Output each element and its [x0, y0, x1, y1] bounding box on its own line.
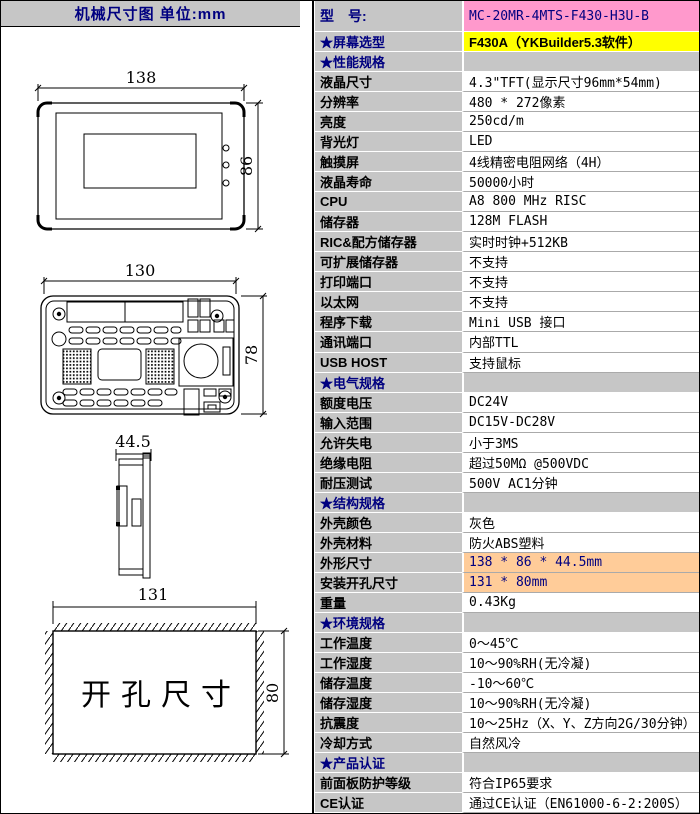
spec-value: 实时时钟+512KB	[462, 232, 699, 252]
spec-row: 储存温度-10～60℃	[314, 673, 699, 693]
spec-label: 可扩展储存器	[314, 252, 462, 272]
spec-row: 液晶尺寸4.3"TFT(显示尺寸96mm*54mm)	[314, 72, 699, 92]
spec-label: 工作湿度	[314, 653, 462, 673]
spec-row: 外形尺寸138 * 86 * 44.5mm	[314, 553, 699, 573]
spec-value: 内部TTL	[462, 332, 699, 352]
spec-label: 安装开孔尺寸	[314, 573, 462, 593]
spec-sheet-page: 机械尺寸图 单位:mm 138	[0, 0, 700, 814]
spec-value: MC-20MR-4MTS-F430-H3U-B	[462, 1, 699, 32]
spec-value: F430A（YKBuilder5.3软件）	[462, 32, 699, 52]
spec-row: 抗震度10～25Hz（X、Y、Z方向2G/30分钟）	[314, 713, 699, 733]
spec-value: A8 800 MHz RISC	[462, 192, 699, 212]
spec-value: 0.43Kg	[462, 593, 699, 613]
spec-row: ★产品认证	[314, 753, 699, 773]
spec-value: 0～45℃	[462, 633, 699, 653]
spec-row: ★屏幕选型F430A（YKBuilder5.3软件）	[314, 32, 699, 52]
spec-value: 4线精密电阻网络（4H）	[462, 152, 699, 172]
spec-row: 储存湿度10～90%RH(无冷凝)	[314, 693, 699, 713]
spec-value	[462, 373, 699, 393]
drawing-panel-title: 机械尺寸图 单位:mm	[1, 1, 300, 27]
spec-label: ★产品认证	[314, 753, 462, 773]
spec-row: 亮度250cd/m	[314, 112, 699, 132]
spec-label: 耐压测试	[314, 473, 462, 493]
spec-label: 通讯端口	[314, 332, 462, 352]
spec-label: 液晶尺寸	[314, 72, 462, 92]
spec-table: 型 号:MC-20MR-4MTS-F430-H3U-B★屏幕选型F430A（YK…	[314, 1, 699, 813]
spec-label: 以太网	[314, 292, 462, 312]
side-view-drawing: 44.5	[115, 432, 151, 578]
spec-value: 250cd/m	[462, 112, 699, 132]
mechanical-drawings-svg: 138 86	[1, 27, 312, 808]
spec-row: 通讯端口内部TTL	[314, 332, 699, 352]
spec-value: DC24V	[462, 393, 699, 413]
spec-row: 触摸屏4线精密电阻网络（4H）	[314, 152, 699, 172]
spec-label: 储存器	[314, 212, 462, 232]
spec-value: LED	[462, 132, 699, 152]
spec-value: 4.3"TFT(显示尺寸96mm*54mm)	[462, 72, 699, 92]
spec-label: 储存湿度	[314, 693, 462, 713]
spec-row: 打印端口不支持	[314, 272, 699, 292]
spec-row: 储存器128M FLASH	[314, 212, 699, 232]
spec-row: ★环境规格	[314, 613, 699, 633]
spec-label: CE认证	[314, 793, 462, 813]
spec-label: 抗震度	[314, 713, 462, 733]
spec-value: 128M FLASH	[462, 212, 699, 232]
spec-label: 亮度	[314, 112, 462, 132]
spec-row: 背光灯LED	[314, 132, 699, 152]
spec-label: 储存温度	[314, 673, 462, 693]
spec-value: 灰色	[462, 513, 699, 533]
spec-row: 冷却方式自然风冷	[314, 733, 699, 753]
spec-label: 外壳颜色	[314, 513, 462, 533]
spec-label: 背光灯	[314, 132, 462, 152]
spec-label: 额度电压	[314, 393, 462, 413]
spec-label: 型 号:	[314, 1, 462, 32]
spec-label: ★性能规格	[314, 52, 462, 72]
spec-label: 外形尺寸	[314, 553, 462, 573]
spec-value: 自然风冷	[462, 733, 699, 753]
spec-label: 重量	[314, 593, 462, 613]
spec-label: 液晶寿命	[314, 172, 462, 192]
spec-label: 冷却方式	[314, 733, 462, 753]
spec-row: 安装开孔尺寸131 * 80mm	[314, 573, 699, 593]
spec-value: 防火ABS塑料	[462, 533, 699, 553]
cutout-width-dimension: 131	[138, 585, 169, 604]
spec-label: 程序下载	[314, 312, 462, 332]
back-width-dimension: 130	[125, 261, 156, 280]
back-height-dimension: 78	[242, 345, 261, 365]
spec-row: 外壳材料防火ABS塑料	[314, 533, 699, 553]
spec-row: 允许失电小于3MS	[314, 433, 699, 453]
spec-value	[462, 493, 699, 513]
spec-label: 前面板防护等级	[314, 773, 462, 793]
front-height-dimension: 86	[237, 156, 256, 176]
spec-value: 支持鼠标	[462, 353, 699, 373]
vent-slots-bottom	[63, 389, 177, 406]
spec-row: CE认证通过CE认证（EN61000-6-2:200S）	[314, 793, 699, 813]
spec-value: 131 * 80mm	[462, 573, 699, 593]
spec-row: 额度电压DC24V	[314, 393, 699, 413]
spec-label: 分辨率	[314, 92, 462, 112]
spec-value: 通过CE认证（EN61000-6-2:200S）	[462, 793, 699, 813]
spec-value	[462, 52, 699, 72]
spec-value	[462, 753, 699, 773]
spec-row: 输入范围DC15V-DC28V	[314, 413, 699, 433]
spec-value: DC15V-DC28V	[462, 413, 699, 433]
front-width-dimension: 138	[126, 68, 157, 87]
spec-row: CPUA8 800 MHz RISC	[314, 192, 699, 212]
spec-value: 符合IP65要求	[462, 773, 699, 793]
spec-label: 绝缘电阻	[314, 453, 462, 473]
spec-label: 工作温度	[314, 633, 462, 653]
drawing-area: 138 86	[1, 27, 312, 813]
spec-value: 小于3MS	[462, 433, 699, 453]
spec-row: 可扩展储存器不支持	[314, 252, 699, 272]
spec-row: RIC&配方储存器实时时钟+512KB	[314, 232, 699, 252]
spec-value: 10～90%RH(无冷凝)	[462, 653, 699, 673]
front-view-drawing: 138 86	[35, 68, 263, 232]
spec-row: ★电气规格	[314, 373, 699, 393]
spec-row: 外壳颜色灰色	[314, 513, 699, 533]
spec-row: 工作温度0～45℃	[314, 633, 699, 653]
spec-value: 不支持	[462, 292, 699, 312]
spec-row: ★性能规格	[314, 52, 699, 72]
spec-row: 工作湿度10～90%RH(无冷凝)	[314, 653, 699, 673]
cutout-drawing: 131 开孔尺寸 80	[45, 585, 289, 762]
spec-row: 程序下载Mini USB 接口	[314, 312, 699, 332]
spec-row: 分辨率480 * 272像素	[314, 92, 699, 112]
spec-value: 不支持	[462, 252, 699, 272]
spec-value: 不支持	[462, 272, 699, 292]
spec-label: 打印端口	[314, 272, 462, 292]
vent-slots-top	[69, 327, 181, 344]
spec-row: 耐压测试500V AC1分钟	[314, 473, 699, 493]
spec-value: 50000小时	[462, 172, 699, 192]
spec-label: ★结构规格	[314, 493, 462, 513]
spec-row: 型 号:MC-20MR-4MTS-F430-H3U-B	[314, 1, 699, 32]
spec-label: ★电气规格	[314, 373, 462, 393]
spec-label: ★屏幕选型	[314, 32, 462, 52]
back-view-drawing: 130	[41, 261, 267, 417]
spec-label: ★环境规格	[314, 613, 462, 633]
side-depth-dimension: 44.5	[115, 432, 151, 451]
spec-label: USB HOST	[314, 353, 462, 373]
spec-value: 500V AC1分钟	[462, 473, 699, 493]
spec-row: 前面板防护等级符合IP65要求	[314, 773, 699, 793]
spec-row: 液晶寿命50000小时	[314, 172, 699, 192]
spec-row: 以太网不支持	[314, 292, 699, 312]
cutout-label-text: 开孔尺寸	[81, 678, 241, 713]
spec-value	[462, 613, 699, 633]
spec-value: Mini USB 接口	[462, 312, 699, 332]
spec-value: -10～60℃	[462, 673, 699, 693]
spec-row: USB HOST支持鼠标	[314, 353, 699, 373]
mechanical-drawing-panel: 机械尺寸图 单位:mm 138	[1, 1, 314, 813]
spec-value: 超过50MΩ @500VDC	[462, 453, 699, 473]
spec-row: 重量0.43Kg	[314, 593, 699, 613]
spec-label: 允许失电	[314, 433, 462, 453]
cutout-height-dimension: 80	[263, 683, 282, 703]
spec-value: 480 * 272像素	[462, 92, 699, 112]
spec-value: 10～90%RH(无冷凝)	[462, 693, 699, 713]
spec-row: ★结构规格	[314, 493, 699, 513]
spec-value: 138 * 86 * 44.5mm	[462, 553, 699, 573]
spec-label: RIC&配方储存器	[314, 232, 462, 252]
spec-label: CPU	[314, 192, 462, 212]
spec-value: 10～25Hz（X、Y、Z方向2G/30分钟）	[462, 713, 699, 733]
spec-label: 输入范围	[314, 413, 462, 433]
spec-row: 绝缘电阻超过50MΩ @500VDC	[314, 453, 699, 473]
spec-label: 触摸屏	[314, 152, 462, 172]
spec-label: 外壳材料	[314, 533, 462, 553]
